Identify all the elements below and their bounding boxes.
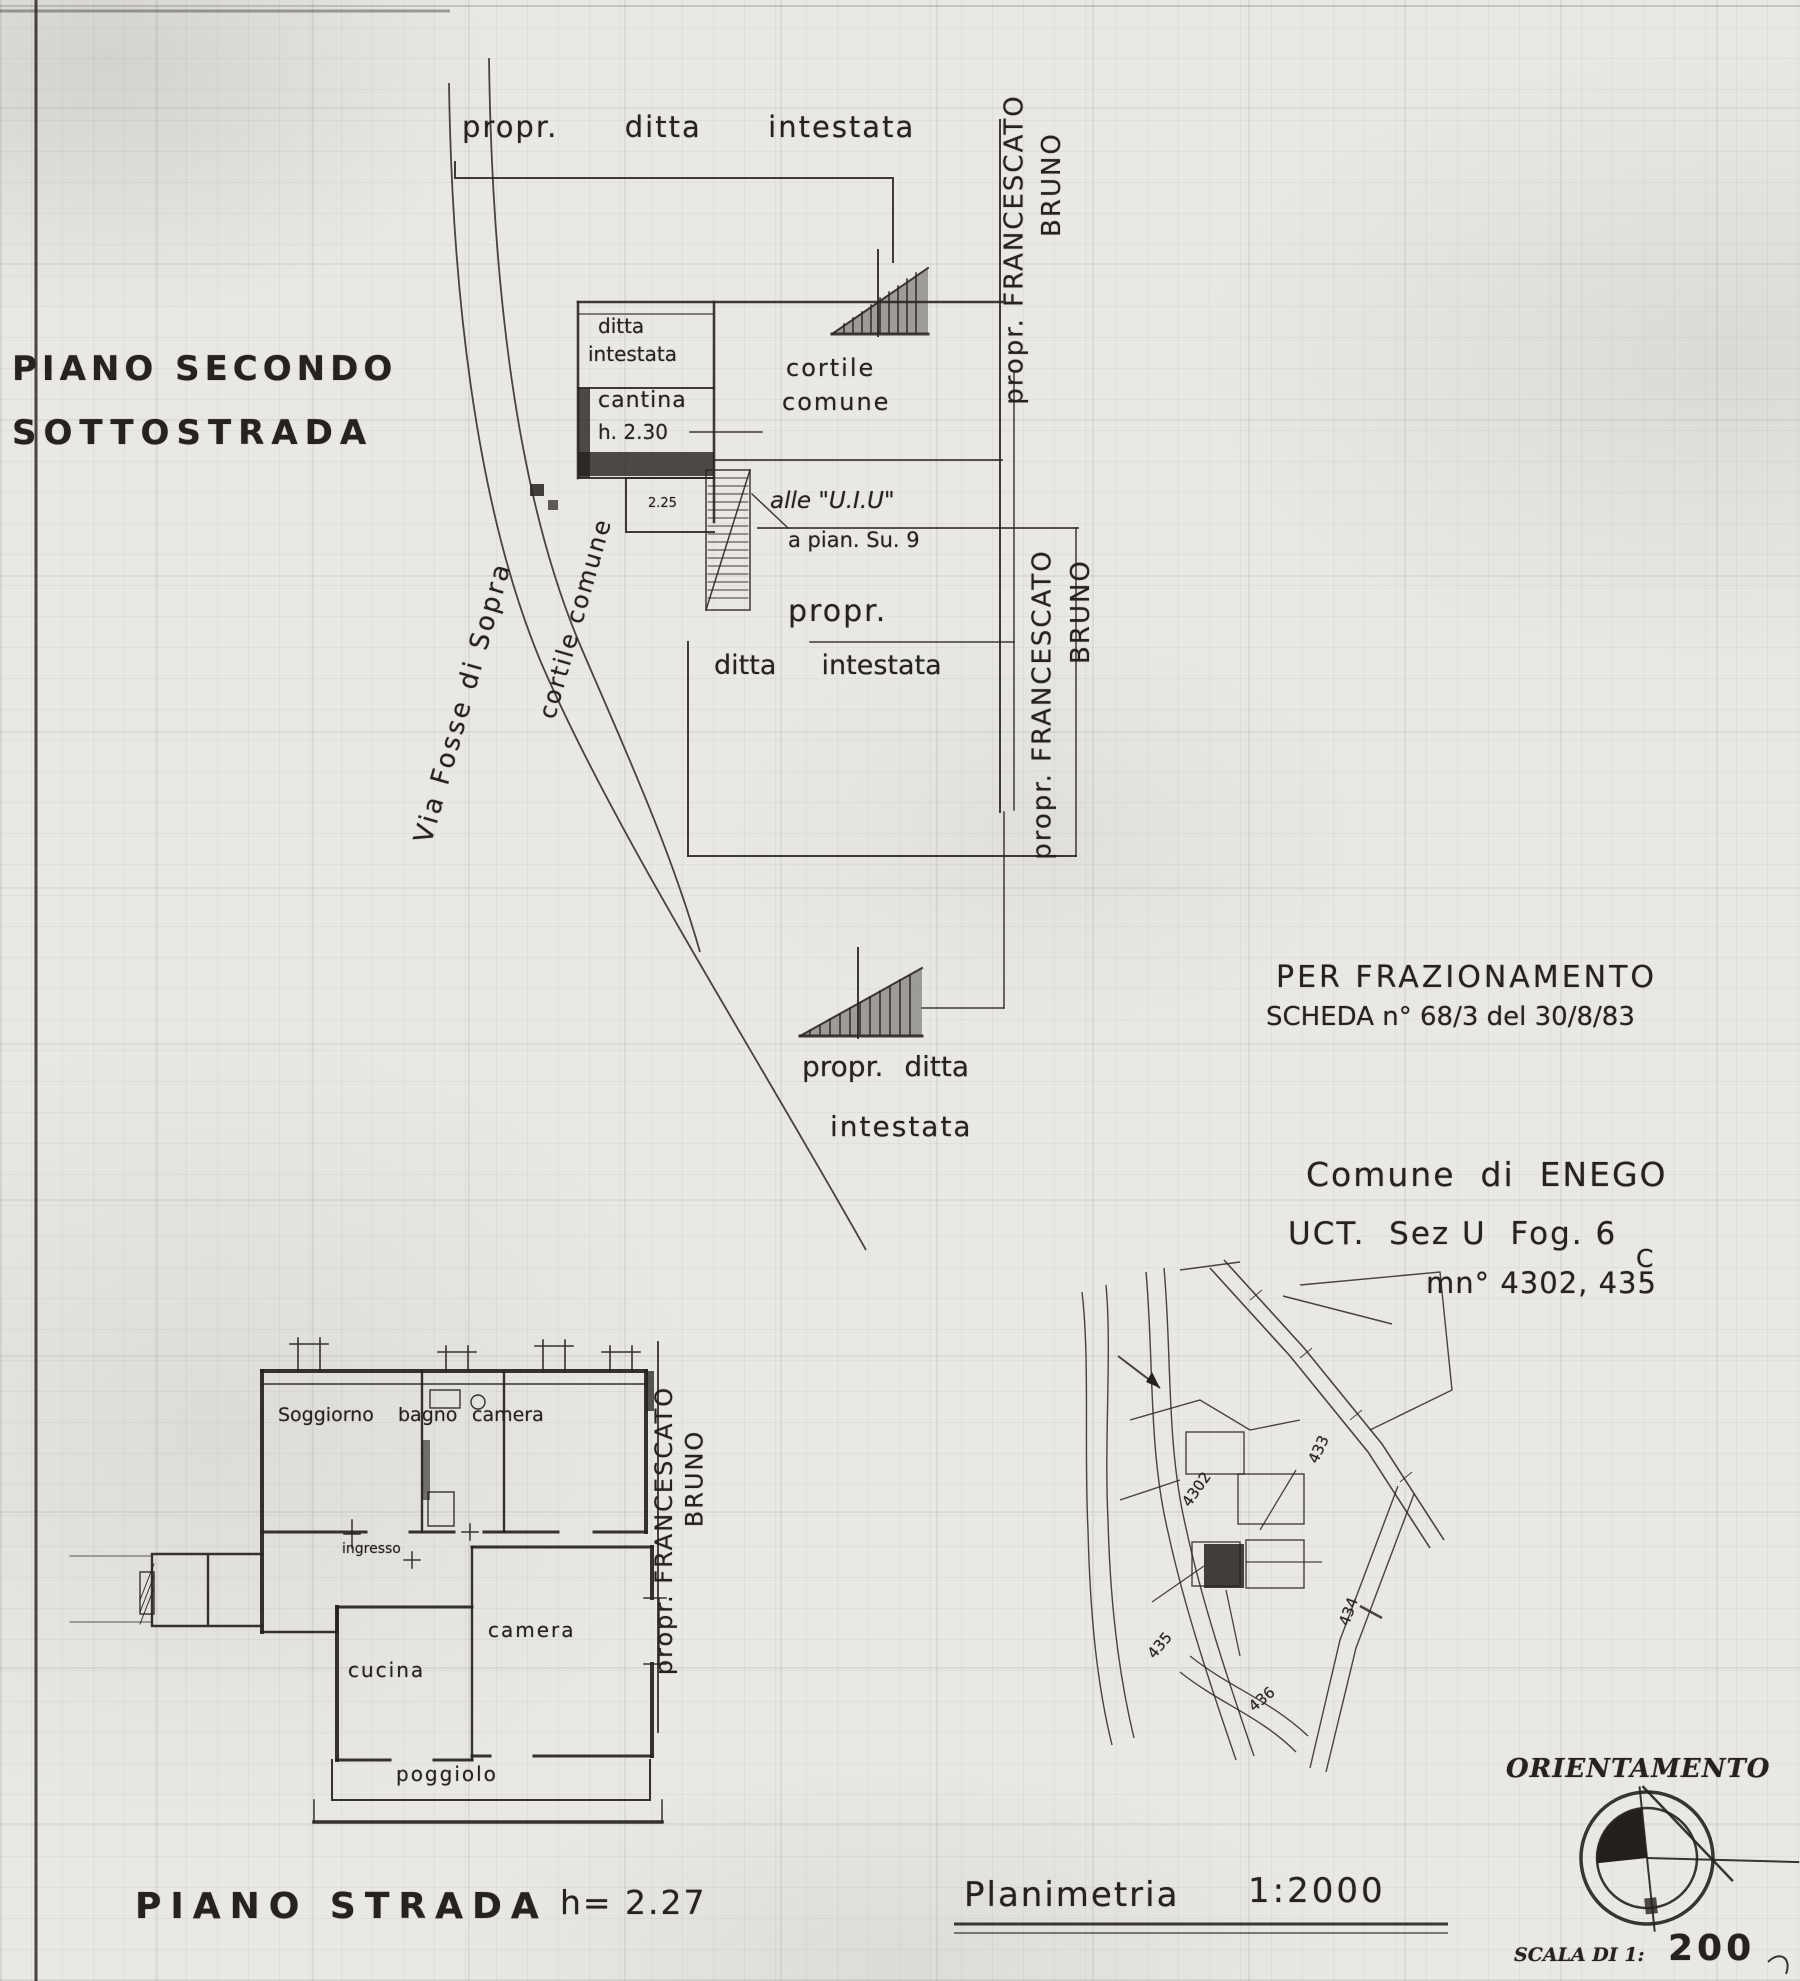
neighbor2-label-line1: propr. FRANCESCATO [1030, 549, 1057, 859]
uiu-annotation-line2: a pian. Su. 9 [788, 530, 920, 552]
frazionamento-note-line2: SCHEDA n° 68/3 del 30/8/83 [1266, 1004, 1635, 1031]
hatched-strip [706, 470, 750, 610]
compass-scale-prefix: SCALA DI 1: [1514, 1946, 1645, 1966]
room-label-bagno: bagno [398, 1406, 457, 1426]
room-label-ingresso: ingresso [342, 1542, 401, 1557]
owner-top-label: propr. ditta intestata [462, 112, 915, 142]
upper-floor-plan [455, 120, 1078, 1038]
room-label-camera2: camera [488, 1620, 576, 1641]
cantina-owner-line1: ditta [598, 316, 644, 337]
map-parcel-number: 435 [1145, 1630, 1175, 1662]
room-label-soggiorno: Soggiorno [278, 1406, 374, 1426]
cortile-label-line1: cortile [786, 356, 875, 381]
subject-parcel [1204, 1544, 1244, 1588]
comune-note-line3: mn° 4302, 435 [1426, 1268, 1657, 1298]
caption-underline [954, 1924, 1788, 1974]
passage-height-label: 2.25 [648, 497, 677, 511]
comune-note-line2: UCT. Sez U Fog. 6 [1288, 1218, 1617, 1250]
frazionamento-note-line1: PER FRAZIONAMENTO [1276, 962, 1657, 993]
neighbor3-label-line1: propr. FRANCESCATO [652, 1386, 677, 1675]
owner-mid-line2: ditta intestata [714, 652, 942, 680]
cantina-owner-line2: intestata [588, 344, 677, 365]
map-parcel-number: 433 [1306, 1434, 1332, 1467]
map-pointer-arrow-icon [1118, 1356, 1160, 1388]
owner-stairs-line1: propr. ditta [802, 1052, 969, 1081]
cantina-height-label: h. 2.30 [598, 422, 668, 443]
planimetria-scale-value: 1:2000 [1248, 1874, 1386, 1909]
floor2-title-line2: SOTTOSTRADA [12, 416, 373, 451]
planimetria-caption: Planimetria [964, 1878, 1179, 1913]
orientamento-title: ORIENTAMENTO [1506, 1756, 1770, 1783]
neighbor2-label-line2: BRUNO [1068, 559, 1095, 664]
floor1-caption: PIANO STRADA [135, 1888, 548, 1925]
floor1-height-value: h= 2.27 [560, 1886, 707, 1920]
cantina-room-label: cantina [598, 390, 687, 413]
cadastral-drawing-sheet: PIANO SECONDO SOTTOSTRADA propr. ditta i… [0, 0, 1800, 1981]
stairs-icon [832, 250, 928, 336]
room-label-cucina: cucina [348, 1660, 425, 1681]
owner-mid-line1: propr. [788, 596, 887, 627]
stairs-icon [800, 948, 922, 1038]
compass-scale-value: 200 [1668, 1930, 1755, 1967]
compass-rose-icon [1574, 1771, 1800, 1939]
neighbor1-label-line1: propr. FRANCESCATO [1002, 94, 1029, 404]
floor2-title-line1: PIANO SECONDO [12, 352, 397, 387]
map-parcel-number: 4302 [1180, 1470, 1215, 1510]
uiu-annotation-line1: alle "U.I.U" [770, 490, 895, 514]
owner-stairs-line2: intestata [830, 1112, 973, 1141]
street-name-label: Via Fosse di Sopra [411, 559, 517, 847]
map-parcel-number: 436 [1246, 1685, 1278, 1715]
room-label-poggiolo: poggiolo [396, 1764, 498, 1785]
cortile-label-line2: comune [782, 390, 890, 415]
comune-note-line1: Comune di ENEGO [1306, 1158, 1668, 1192]
room-label-camera1: camera [472, 1406, 544, 1426]
map-parcel-number: 434 [1337, 1596, 1361, 1628]
cortile-diagonal-label: cortile comune [535, 515, 616, 721]
neighbor1-label-line2: BRUNO [1039, 132, 1066, 237]
neighbor3-label-line2: BRUNO [682, 1430, 707, 1528]
